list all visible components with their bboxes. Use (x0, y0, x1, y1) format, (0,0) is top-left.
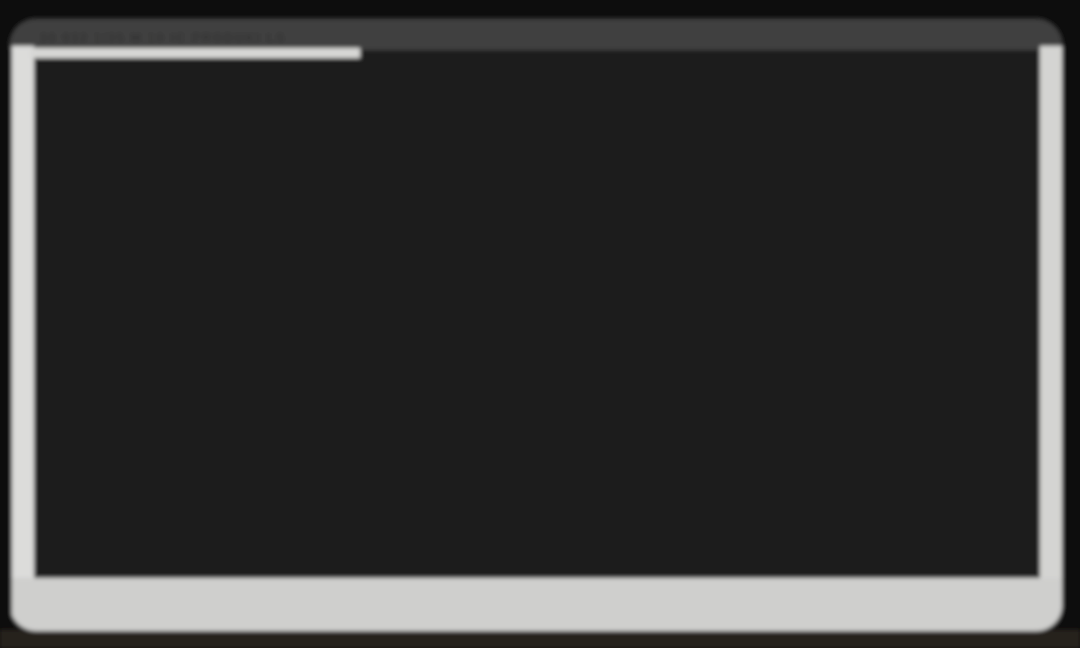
svg-text:38 932 1/35 M 10 IC PRODUKI: 38 932 1/35 M 10 IC PRODUKI LS (40, 31, 286, 45)
